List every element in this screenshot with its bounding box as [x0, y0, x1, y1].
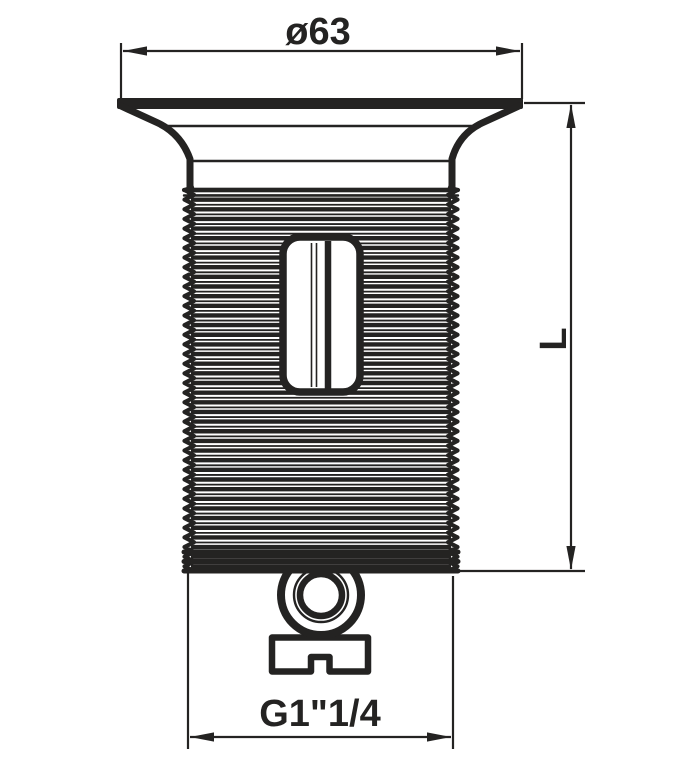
- arrowhead-left: [190, 732, 214, 741]
- coupling-ring-inner: [300, 574, 342, 616]
- flange-right-profile: [452, 106, 519, 192]
- arrowhead-up: [566, 104, 575, 128]
- dimension-right-length: L: [456, 103, 585, 571]
- dimension-label-length: L: [533, 327, 575, 350]
- flange-left-profile: [121, 106, 190, 192]
- fixing-tab: [272, 638, 368, 672]
- drawing-canvas: ø63 L G1"1/4: [0, 0, 700, 763]
- flange-rim: [117, 98, 523, 109]
- dimension-label-thread: G1"1/4: [259, 693, 381, 735]
- arrowhead-right: [427, 732, 451, 741]
- arrowhead-left: [123, 46, 147, 55]
- slot-window: [283, 237, 360, 392]
- technical-drawing: ø63 L G1"1/4: [0, 0, 700, 763]
- dimension-label-diameter: ø63: [285, 11, 350, 53]
- dimension-top-diameter: ø63: [121, 11, 522, 99]
- arrowhead-down: [566, 546, 575, 570]
- flange: [117, 98, 523, 192]
- arrowhead-right: [496, 46, 520, 55]
- slot-outline: [283, 237, 360, 392]
